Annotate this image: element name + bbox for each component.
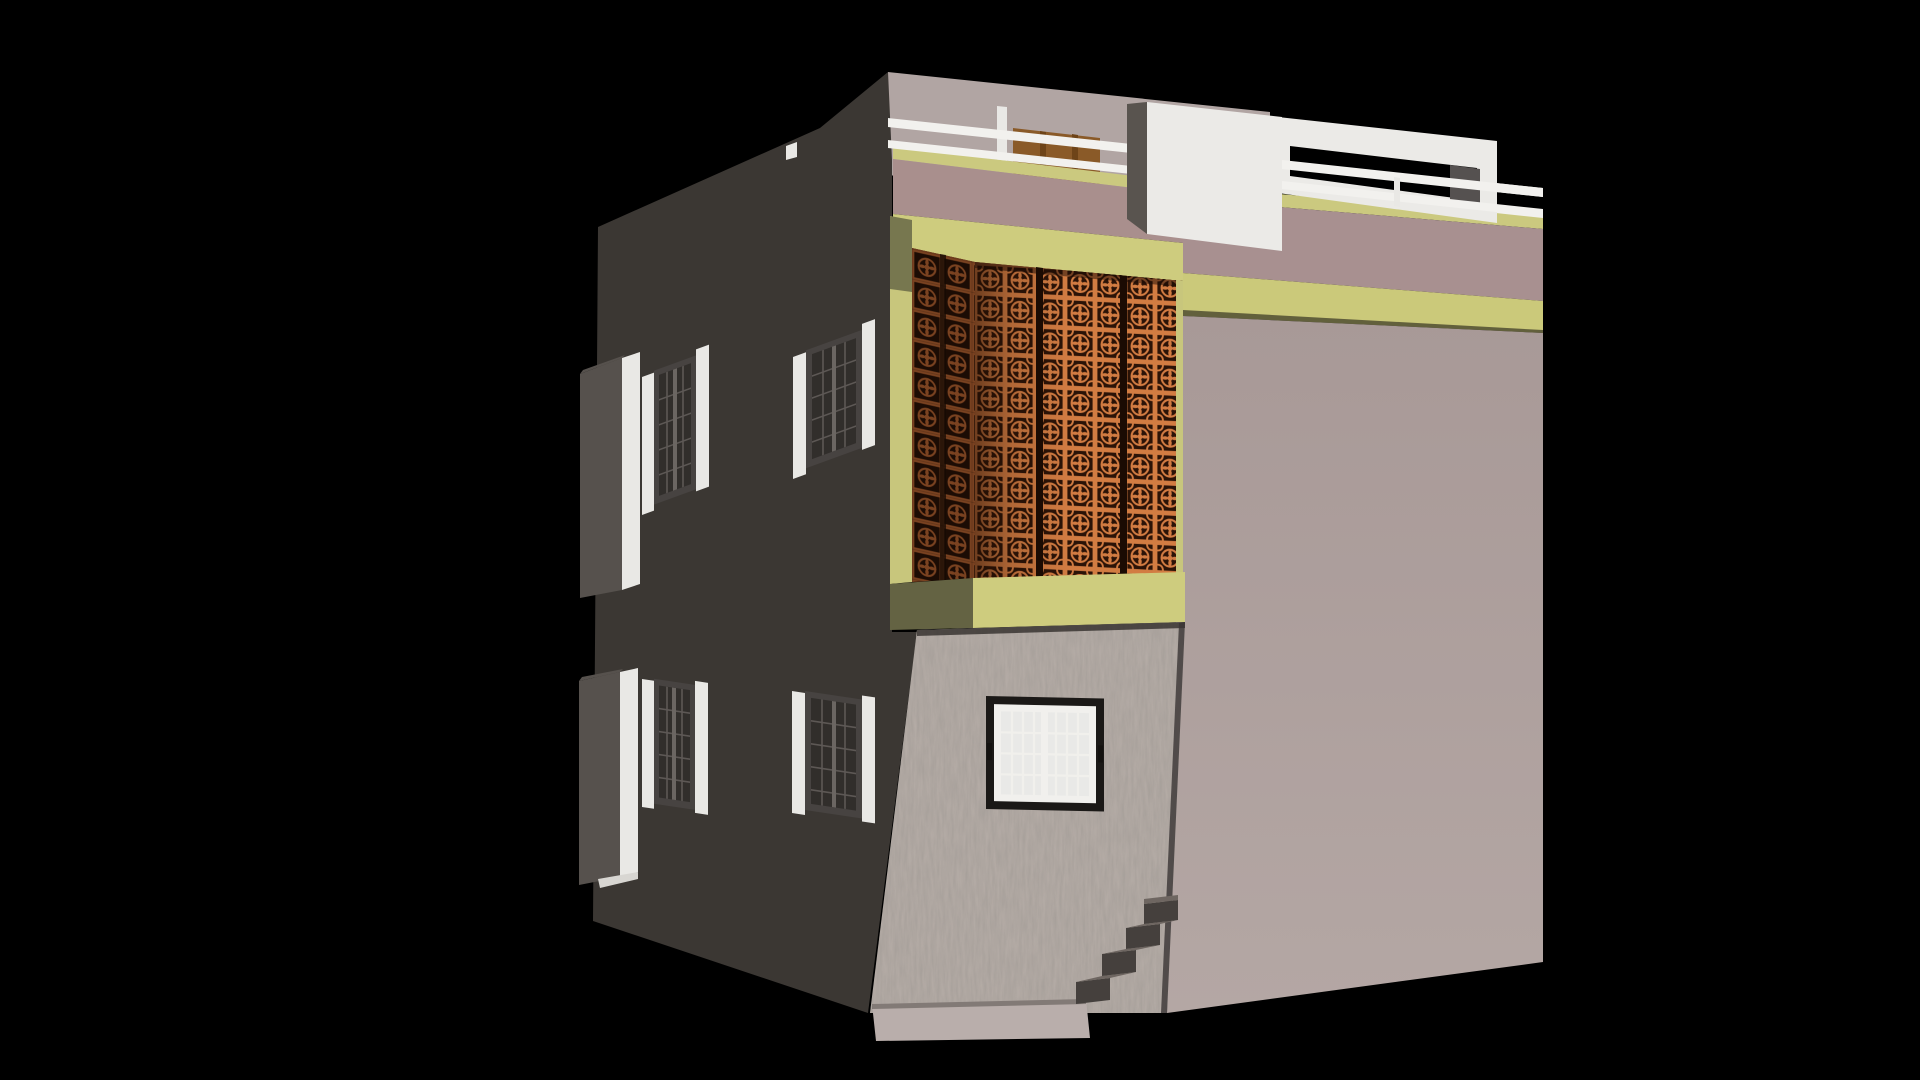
jali-edge-strip <box>1176 280 1183 575</box>
jali-divider <box>940 254 946 581</box>
railing-post <box>1394 177 1400 207</box>
house-render <box>0 0 1920 1080</box>
window-handle <box>987 743 992 760</box>
side-window-lower-right <box>792 685 875 825</box>
rooftop-white-block <box>1127 102 1282 251</box>
balcony-soffit <box>890 578 973 630</box>
jali-pilaster-shadow <box>890 216 912 292</box>
stucco-front-pier <box>870 622 1185 1041</box>
window-handle <box>1098 745 1103 762</box>
facade-dark-side <box>593 72 917 1013</box>
facade-right <box>1167 186 1543 1013</box>
side-window-lower-left <box>642 673 708 817</box>
facade-projecting-box-lower <box>579 668 638 888</box>
jali-divider <box>1036 267 1043 577</box>
right-wall <box>1167 316 1543 1013</box>
stucco-texture <box>870 622 1185 1013</box>
facade-projecting-box-upper <box>580 352 640 598</box>
jali-corner-shading <box>975 262 1183 578</box>
balcony-bottom-band <box>973 572 1185 628</box>
render-viewport <box>0 0 1920 1080</box>
jali-divider <box>1120 275 1127 575</box>
front-window <box>986 696 1104 811</box>
balcony-jali-box <box>890 216 1185 630</box>
